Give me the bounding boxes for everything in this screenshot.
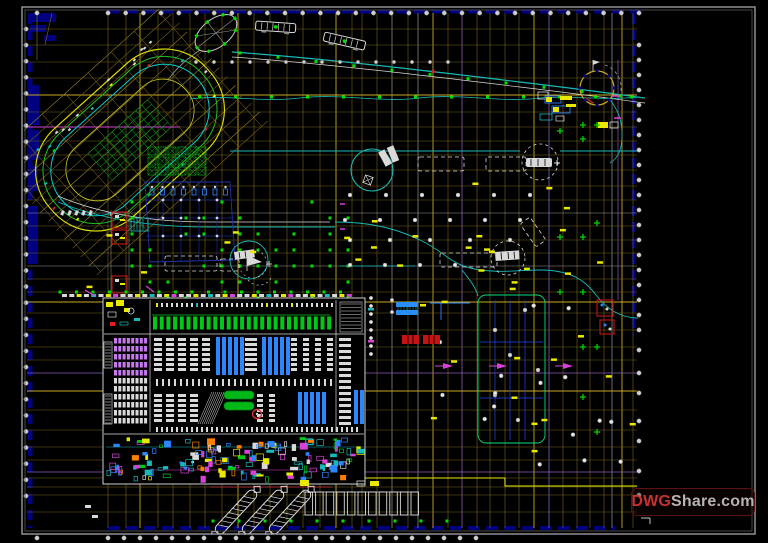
cad-viewer-canvas[interactable]: DWGShare.com xyxy=(0,0,768,543)
site-plan-drawing xyxy=(0,0,768,543)
watermark[interactable]: DWGShare.com xyxy=(631,488,755,516)
watermark-brand-prefix: DWG xyxy=(631,493,671,511)
watermark-brand-suffix: Share.com xyxy=(671,493,755,511)
parking-structure-plan xyxy=(103,296,440,484)
ramps-and-colonnade xyxy=(85,480,449,541)
stadium-plan xyxy=(0,5,268,275)
